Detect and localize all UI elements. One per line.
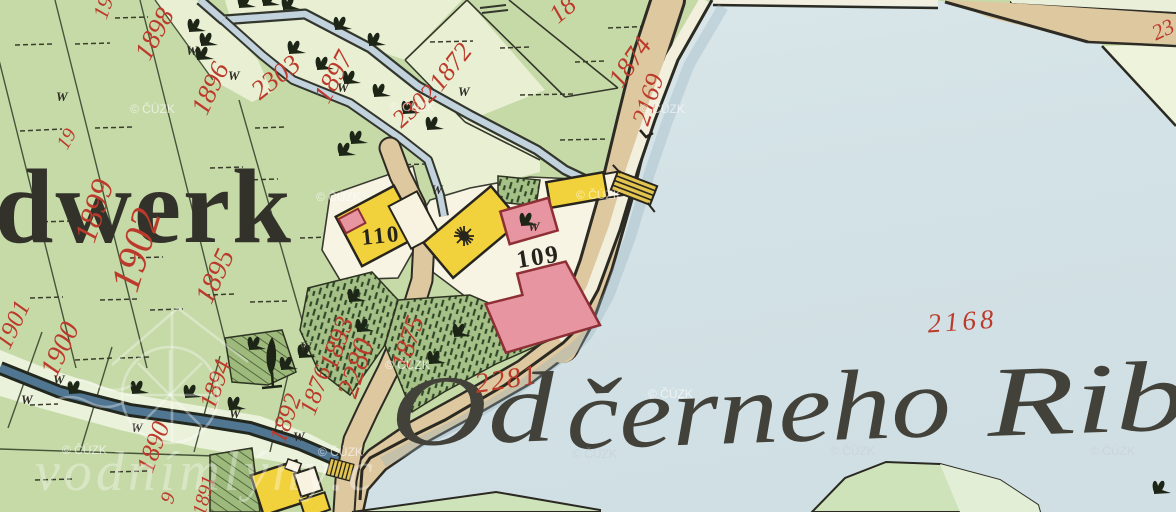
svg-text:W: W — [229, 406, 242, 421]
svg-text:© ČÚZK: © ČÚZK — [316, 189, 361, 204]
svg-text:W: W — [528, 219, 541, 234]
svg-text:© ČÚZK: © ČÚZK — [830, 443, 875, 458]
svg-text:černeho: černeho — [564, 347, 953, 471]
svg-text:W: W — [300, 339, 313, 354]
svg-text:110: 110 — [360, 221, 402, 250]
svg-text:© ČÚZK: © ČÚZK — [648, 386, 693, 401]
svg-text:© ČÚZK: © ČÚZK — [1090, 443, 1135, 458]
svg-text:© ČÚZK: © ČÚZK — [640, 101, 685, 116]
svg-text:© ČÚZK: © ČÚZK — [390, 99, 435, 114]
svg-text:W: W — [458, 84, 471, 99]
svg-text:© ČÚZK: © ČÚZK — [572, 446, 617, 461]
svg-text:© ČÚZK: © ČÚZK — [318, 444, 363, 459]
svg-text:2168: 2168 — [926, 304, 998, 339]
svg-text:W: W — [431, 182, 444, 197]
svg-text:© ČÚZK: © ČÚZK — [576, 187, 621, 202]
svg-text:W: W — [186, 43, 199, 58]
svg-text:© ČÚZK: © ČÚZK — [62, 442, 107, 457]
svg-text:W: W — [21, 392, 34, 407]
svg-text:W: W — [56, 89, 69, 104]
svg-text:© ČÚZK: © ČÚZK — [385, 357, 430, 372]
svg-text:Rib: Rib — [983, 340, 1176, 458]
svg-text:© ČÚZK: © ČÚZK — [130, 101, 175, 116]
